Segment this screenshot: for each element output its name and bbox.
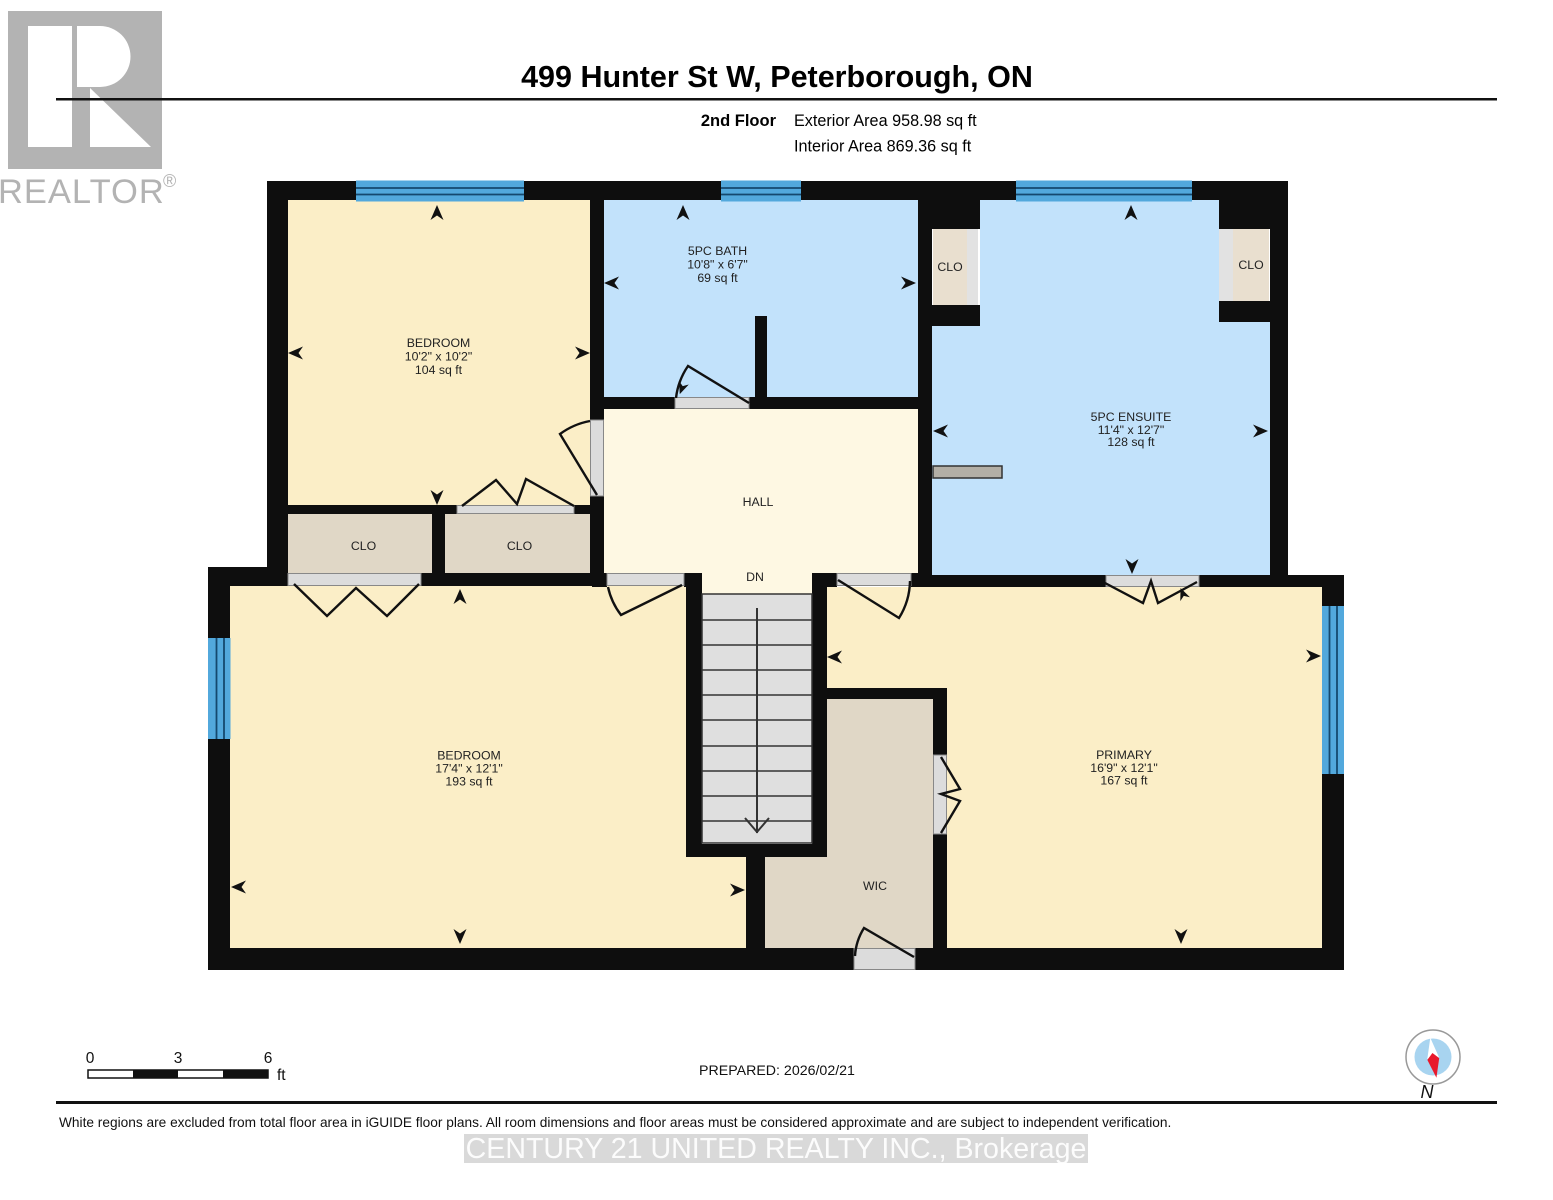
svg-text:CLO: CLO	[507, 539, 532, 553]
svg-text:HALL: HALL	[743, 495, 774, 509]
svg-text:5PC BATH: 5PC BATH	[688, 244, 747, 258]
svg-text:5PC ENSUITE: 5PC ENSUITE	[1091, 410, 1172, 424]
svg-text:BEDROOM: BEDROOM	[407, 336, 471, 350]
svg-text:PREPARED: 2026/02/21: PREPARED: 2026/02/21	[699, 1063, 855, 1079]
svg-text:DN: DN	[746, 570, 764, 584]
svg-text:10'2" x 10'2": 10'2" x 10'2"	[405, 350, 472, 364]
svg-text:ft: ft	[277, 1067, 286, 1084]
svg-text:499 Hunter St W, Peterborough,: 499 Hunter St W, Peterborough, ON	[521, 60, 1033, 94]
svg-text:193 sq ft: 193 sq ft	[445, 775, 493, 789]
svg-text:REALTOR: REALTOR	[0, 173, 165, 211]
svg-text:White regions are excluded fro: White regions are excluded from total fl…	[59, 1115, 1171, 1130]
svg-text:104 sq ft: 104 sq ft	[415, 363, 463, 377]
svg-text:CENTURY 21 UNITED REALTY INC.,: CENTURY 21 UNITED REALTY INC., Brokerage	[466, 1133, 1087, 1165]
svg-text:69 sq ft: 69 sq ft	[697, 271, 738, 285]
svg-text:0: 0	[86, 1050, 95, 1067]
svg-text:BEDROOM: BEDROOM	[437, 749, 501, 763]
svg-text:167 sq ft: 167 sq ft	[1100, 774, 1148, 788]
svg-text:®: ®	[163, 171, 176, 191]
svg-text:2nd Floor: 2nd Floor	[701, 112, 777, 130]
svg-text:10'8" x 6'7": 10'8" x 6'7"	[687, 258, 748, 272]
svg-text:6: 6	[264, 1050, 273, 1067]
svg-text:CLO: CLO	[937, 260, 962, 274]
svg-text:17'4" x 12'1": 17'4" x 12'1"	[435, 762, 502, 776]
svg-text:Interior Area 869.36 sq ft: Interior Area 869.36 sq ft	[794, 138, 972, 156]
svg-text:WIC: WIC	[863, 879, 887, 893]
svg-text:CLO: CLO	[1238, 258, 1263, 272]
svg-text:128 sq ft: 128 sq ft	[1107, 435, 1155, 449]
svg-text:Exterior Area 958.98 sq ft: Exterior Area 958.98 sq ft	[794, 112, 977, 130]
svg-text:3: 3	[174, 1050, 183, 1067]
svg-text:N: N	[1421, 1082, 1435, 1102]
svg-text:CLO: CLO	[351, 539, 376, 553]
svg-text:PRIMARY: PRIMARY	[1096, 748, 1152, 762]
